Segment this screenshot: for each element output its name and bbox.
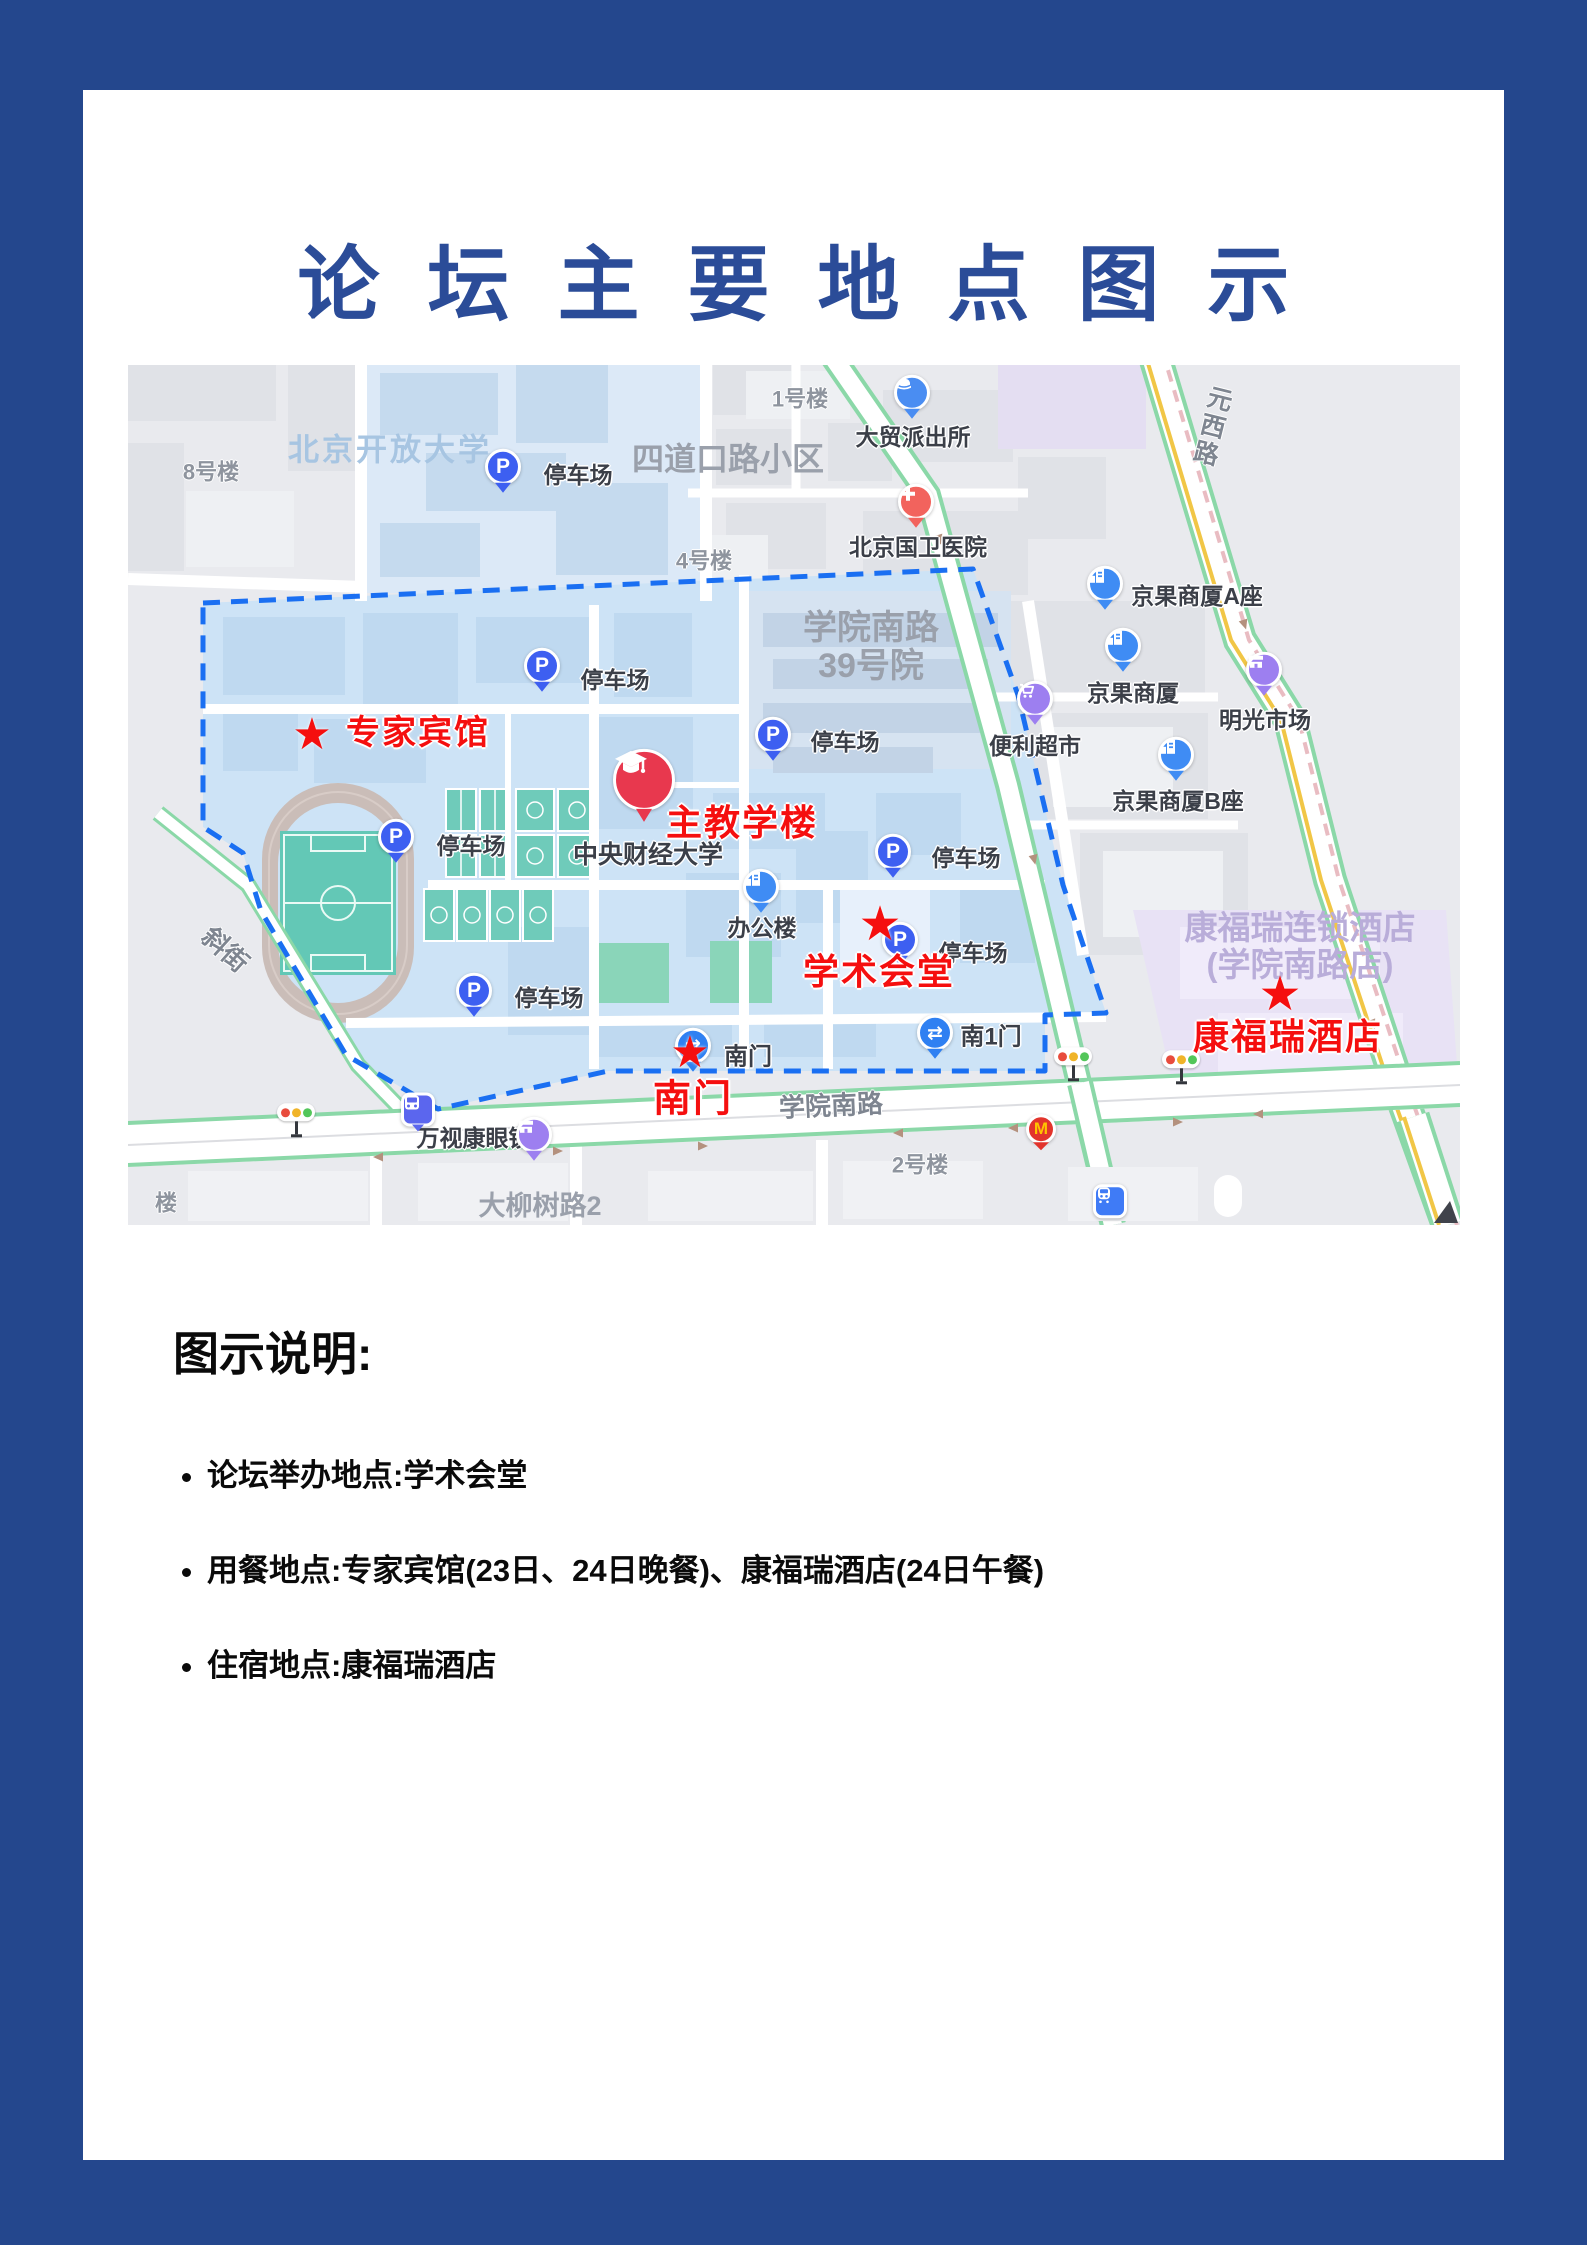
marker-south-gate-star-icon: ★ bbox=[670, 1031, 709, 1075]
page-title: 论坛主要地点图示 bbox=[83, 218, 1504, 337]
label-parking-1: 停车场 bbox=[544, 463, 613, 489]
parking-pin-icon: P bbox=[875, 834, 911, 878]
label-south-gate-1: 南1门 bbox=[960, 1025, 1021, 1052]
marker-kangfurui-hotel-label: 康福瑞酒店 bbox=[1193, 1017, 1383, 1057]
legend-list: 论坛举办地点:学术会堂用餐地点:专家宾馆(23日、24日晚餐)、康福瑞酒店(24… bbox=[179, 1456, 1044, 1686]
marker-expert-hotel-label: 专家宾馆 bbox=[346, 714, 490, 752]
label-damao-police-station: 大贸派出所 bbox=[856, 425, 971, 451]
parking-pin-icon: P bbox=[378, 819, 414, 863]
marker-academic-hall-star-icon: ★ bbox=[858, 901, 901, 949]
label-daliushu-road: 大柳树路2 bbox=[478, 1191, 601, 1221]
bus-stop-icon bbox=[401, 1093, 435, 1132]
legend-item-3: 住宿地点:康福瑞酒店 bbox=[207, 1646, 1044, 1686]
label-office-building: 办公楼 bbox=[728, 916, 797, 942]
label-guowei-hospital: 北京国卫医院 bbox=[849, 535, 987, 561]
legend: 图示说明: 论坛举办地点:学术会堂用餐地点:专家宾馆(23日、24日晚餐)、康福… bbox=[173, 1318, 1044, 1741]
traffic-light-icon bbox=[1054, 1047, 1092, 1081]
label-lou-partial: 楼 bbox=[155, 1192, 177, 1217]
label-xiejie-road: 斜街 bbox=[196, 922, 254, 978]
label-parking-4: 停车场 bbox=[515, 986, 584, 1012]
building-icon bbox=[1158, 737, 1194, 781]
metro-station-icon bbox=[1093, 1184, 1127, 1218]
marker-south-gate-label: 南门 bbox=[653, 1079, 733, 1122]
building-icon bbox=[1087, 566, 1123, 610]
optician-shop-icon bbox=[516, 1117, 552, 1161]
building-icon bbox=[1105, 628, 1141, 672]
traffic-light-icon bbox=[277, 1103, 315, 1137]
label-parking-5: 停车场 bbox=[811, 730, 880, 756]
label-parking-6: 停车场 bbox=[932, 846, 1001, 872]
marker-academic-hall-label: 学术会堂 bbox=[803, 952, 955, 992]
label-building-4: 4号楼 bbox=[676, 550, 732, 575]
legend-heading: 图示说明: bbox=[173, 1318, 1044, 1384]
label-xueyuan-south-road: 学院南路 bbox=[778, 1089, 883, 1123]
market-icon bbox=[1246, 652, 1282, 696]
hospital-icon bbox=[898, 484, 934, 528]
marker-main-teaching-building-label: 主教学楼 bbox=[666, 803, 818, 843]
campus-map: 北京开放大学四道口路小区8号楼1号楼4号楼学院南路 39号院大贸派出所北京国卫医… bbox=[128, 365, 1460, 1225]
mcdonalds-icon: M bbox=[1026, 1114, 1056, 1150]
label-yuanxi-road: 元 西 路 bbox=[1191, 383, 1236, 471]
label-parking-3: 停车场 bbox=[437, 834, 506, 860]
legend-item-1: 论坛举办地点:学术会堂 bbox=[207, 1456, 1044, 1496]
parking-pin-icon: P bbox=[456, 973, 492, 1017]
label-jingguo-tower: 京果商厦 bbox=[1087, 681, 1179, 707]
label-building-1: 1号楼 bbox=[772, 388, 828, 413]
office-building-icon bbox=[743, 869, 779, 913]
police-station-icon bbox=[894, 375, 930, 419]
label-xueyuannanlu-39: 学院南路 39号院 bbox=[803, 609, 939, 685]
marker-expert-hotel-star-icon: ★ bbox=[292, 713, 331, 757]
label-cufe: 中央财经大学 bbox=[573, 841, 723, 869]
label-mingguang-market: 明光市场 bbox=[1219, 708, 1311, 734]
parking-pin-icon: P bbox=[485, 449, 521, 493]
legend-item-2: 用餐地点:专家宾馆(23日、24日晚餐)、康福瑞酒店(24日午餐) bbox=[207, 1551, 1044, 1591]
label-beijing-open-university: 北京开放大学 bbox=[288, 434, 492, 469]
parking-pin-icon: P bbox=[755, 717, 791, 761]
label-building-2: 2号楼 bbox=[892, 1154, 948, 1179]
marker-kangfurui-hotel-star-icon: ★ bbox=[1258, 971, 1301, 1019]
south-gate-1-icon: ⇄ bbox=[917, 1015, 953, 1059]
page-content: 论坛主要地点图示 bbox=[83, 90, 1504, 2160]
label-sidaokou-block: 四道口路小区 bbox=[632, 442, 824, 478]
label-building-8: 8号楼 bbox=[183, 461, 239, 486]
label-jingguo-tower-b: 京果商厦B座 bbox=[1112, 789, 1244, 815]
label-jingguo-tower-a: 京果商厦A座 bbox=[1131, 584, 1263, 610]
label-convenience-store: 便利超市 bbox=[989, 734, 1081, 760]
supermarket-cart-icon bbox=[1017, 681, 1053, 725]
label-parking-2: 停车场 bbox=[581, 668, 650, 694]
parking-pin-icon: P bbox=[524, 648, 560, 692]
label-south-gate-gray: 南门 bbox=[724, 1045, 772, 1072]
map-overlays: 北京开放大学四道口路小区8号楼1号楼4号楼学院南路 39号院大贸派出所北京国卫医… bbox=[128, 365, 1460, 1225]
